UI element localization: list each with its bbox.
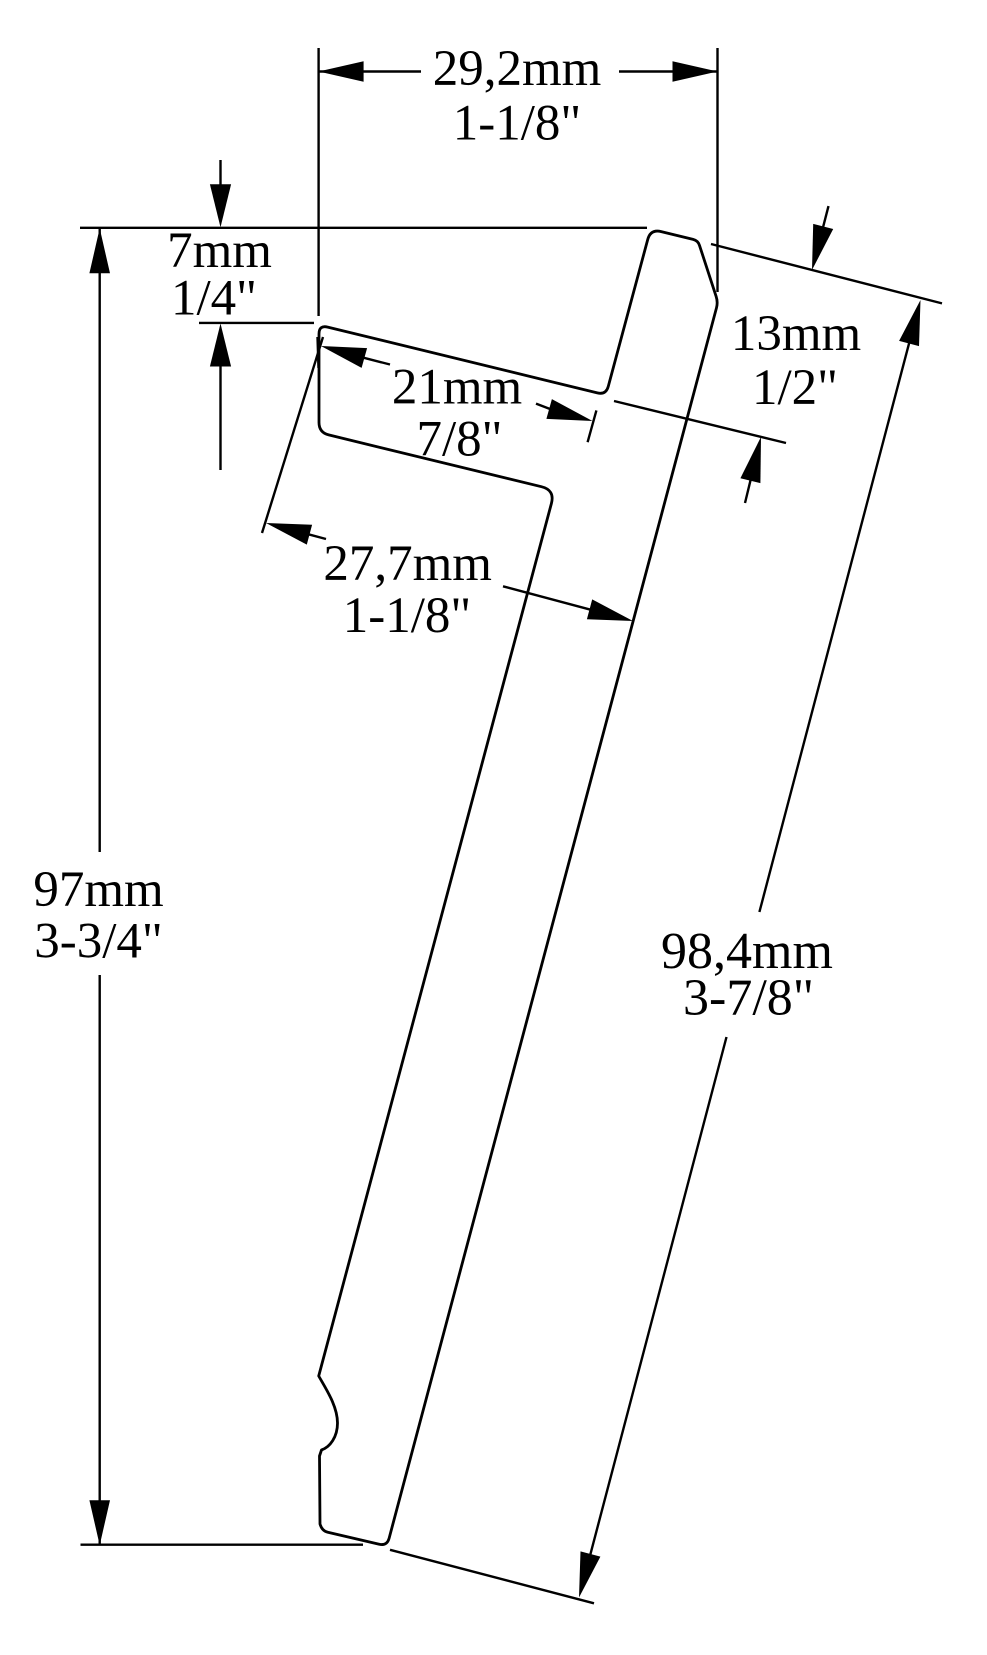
svg-text:1/4": 1/4" xyxy=(171,271,257,327)
svg-text:13mm: 13mm xyxy=(731,306,861,362)
svg-text:3-7/8": 3-7/8" xyxy=(683,970,814,1027)
svg-text:1-1/8": 1-1/8" xyxy=(343,588,471,644)
svg-text:97mm: 97mm xyxy=(33,862,163,918)
svg-text:3-3/4": 3-3/4" xyxy=(34,914,162,970)
svg-text:1-1/8": 1-1/8" xyxy=(453,96,581,152)
svg-text:27,7mm: 27,7mm xyxy=(323,536,492,592)
svg-text:29,2mm: 29,2mm xyxy=(433,41,602,97)
svg-text:1/2": 1/2" xyxy=(752,360,838,416)
svg-text:7/8": 7/8" xyxy=(417,411,503,467)
svg-text:21mm: 21mm xyxy=(392,360,522,416)
